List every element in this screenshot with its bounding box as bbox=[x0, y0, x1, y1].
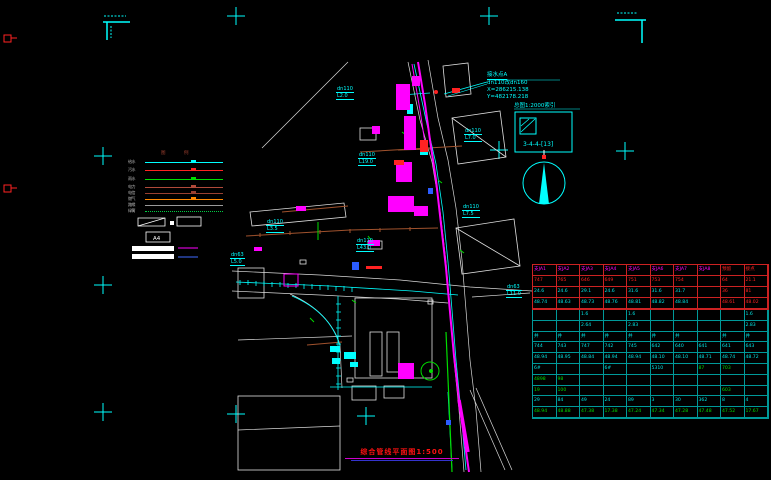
legend-row-line bbox=[145, 170, 223, 171]
table-cell: 24.6 bbox=[604, 287, 628, 298]
table-cell bbox=[533, 310, 557, 321]
pipe-length: L43.0 bbox=[356, 245, 374, 252]
table-cell: 47.24 bbox=[627, 407, 651, 418]
pipe-diameter: dn110 bbox=[266, 219, 284, 226]
table-cell bbox=[580, 375, 604, 386]
pipe-change-note: dn110改dn160 bbox=[487, 80, 529, 87]
edge-marker-icon bbox=[4, 35, 17, 192]
table-cell: 48.71 bbox=[698, 353, 722, 364]
table-cell: 641 bbox=[721, 342, 745, 353]
table-cell: 744 bbox=[533, 342, 557, 353]
table-cell bbox=[674, 321, 698, 332]
table-cell: 17.67 bbox=[745, 407, 769, 418]
corner-mark-top-right bbox=[615, 13, 646, 43]
pipe-diameter: dn110 bbox=[356, 238, 374, 245]
table-cell: 743 bbox=[557, 342, 581, 353]
table-cell: 643 bbox=[745, 342, 769, 353]
table-cell: 36 bbox=[721, 287, 745, 298]
coordinate-x: X=286215.138 bbox=[487, 87, 529, 94]
legend-row-label: 污水 bbox=[128, 167, 145, 173]
legend-a4-label: A4 bbox=[153, 236, 161, 242]
pipe-label: dn110L3.5 bbox=[266, 219, 284, 233]
table-cell: 支JA1 bbox=[533, 265, 557, 276]
table-cell: 21.1 bbox=[745, 276, 769, 287]
table-cell bbox=[604, 310, 628, 321]
table-cell bbox=[651, 375, 675, 386]
pipe-data-table: 支JA1支JA2支JA3支JA4支JA5支JA6支JA7支JA8预留接点7477… bbox=[532, 264, 769, 419]
table-cell: 703 bbox=[721, 364, 745, 375]
table-cell: 362 bbox=[698, 396, 722, 407]
hydrant-icon bbox=[352, 188, 451, 425]
pipe-length: L7.0 bbox=[464, 135, 482, 142]
table-cell: 24.6 bbox=[557, 287, 581, 298]
table-cell: 48.74 bbox=[721, 353, 745, 364]
table-cell: 747 bbox=[533, 276, 557, 287]
table-cell bbox=[745, 375, 769, 386]
table-cell: 48.81 bbox=[627, 298, 651, 309]
legend-row: 给水 bbox=[128, 159, 223, 165]
table-cell: 48.94 bbox=[533, 407, 557, 418]
pipe-label: dn110L43.0 bbox=[356, 238, 374, 252]
table-cell: 745 bbox=[627, 342, 651, 353]
table-cell: 30 bbox=[674, 396, 698, 407]
table-cell bbox=[698, 287, 722, 298]
table-cell bbox=[674, 310, 698, 321]
table-cell: 支JA4 bbox=[604, 265, 628, 276]
table-cell bbox=[604, 321, 628, 332]
table-cell: 84 bbox=[557, 396, 581, 407]
table-cell: 89 bbox=[627, 396, 651, 407]
table-cell bbox=[698, 386, 722, 397]
table-cell bbox=[557, 321, 581, 332]
legend-row-label: 绿篱 bbox=[128, 208, 145, 214]
table-cell: 29 bbox=[533, 396, 557, 407]
table-cell: 1.6 bbox=[580, 310, 604, 321]
table-cell bbox=[721, 375, 745, 386]
table-cell bbox=[674, 375, 698, 386]
table-cell: 31.6 bbox=[651, 287, 675, 298]
table-cell: 接点 bbox=[745, 265, 769, 276]
table-cell bbox=[698, 298, 722, 309]
legend-row-line bbox=[145, 193, 223, 194]
table-cell: 1.6 bbox=[627, 310, 651, 321]
table-cell bbox=[604, 386, 628, 397]
table-cell: 31.6 bbox=[627, 287, 651, 298]
table-cell: 765 bbox=[557, 276, 581, 287]
pipe-label: dn110L2.0 bbox=[336, 86, 354, 100]
pipe-diameter: dn110 bbox=[462, 204, 480, 211]
table-cell: 支JA5 bbox=[627, 265, 651, 276]
table-cell bbox=[698, 310, 722, 321]
table-cell bbox=[651, 386, 675, 397]
existing-utility-lines bbox=[246, 146, 462, 345]
legend-col2: 例 bbox=[184, 149, 189, 156]
table-cell: 5310 bbox=[651, 364, 675, 375]
pipe-length: L11.0 bbox=[506, 291, 522, 298]
table-cell: 751 bbox=[627, 276, 651, 287]
legend-row-line bbox=[145, 211, 223, 212]
table-cell bbox=[627, 364, 651, 375]
corner-mark-top-left bbox=[103, 16, 130, 40]
title-underline-2 bbox=[351, 460, 453, 461]
table-cell: 48.61 bbox=[721, 298, 745, 309]
legend-row-line bbox=[145, 162, 223, 163]
legend-row-marker bbox=[191, 160, 196, 163]
junction-annotation: 接水点A dn110改dn160 X=286215.138 Y=482178.2… bbox=[487, 72, 529, 101]
pipe-label: dn110L7.0 bbox=[464, 128, 482, 142]
table-cell: 4898 bbox=[533, 375, 557, 386]
table-cell: 2.83 bbox=[745, 321, 769, 332]
table-cell: 支JA2 bbox=[557, 265, 581, 276]
table-cell: 48.84 bbox=[580, 353, 604, 364]
table-cell: 6# bbox=[604, 364, 628, 375]
table-cell bbox=[533, 321, 557, 332]
table-cell: 井 bbox=[721, 332, 745, 343]
table-cell: 支JA7 bbox=[674, 265, 698, 276]
table-cell: 48.82 bbox=[651, 298, 675, 309]
table-cell: 48.95 bbox=[557, 353, 581, 364]
table-cell: 48.73 bbox=[580, 298, 604, 309]
legend-col1: 图 bbox=[161, 150, 166, 156]
table-cell: 753 bbox=[651, 276, 675, 287]
table-cell: 649 bbox=[604, 276, 628, 287]
table-cell bbox=[745, 386, 769, 397]
table-cell: 48.74 bbox=[533, 298, 557, 309]
table-cell bbox=[604, 375, 628, 386]
pipe-diameter: dn63 bbox=[230, 252, 245, 259]
table-cell: 24.6 bbox=[533, 287, 557, 298]
pipe-length: L2.0 bbox=[336, 93, 354, 100]
detail-box-label: 3-4-4-[13] bbox=[523, 141, 553, 148]
legend-row-line bbox=[145, 205, 223, 206]
table-cell: 24 bbox=[604, 396, 628, 407]
table-cell bbox=[557, 364, 581, 375]
table-cell bbox=[674, 386, 698, 397]
hatch-icon bbox=[521, 119, 535, 132]
table-cell: 87 bbox=[698, 364, 722, 375]
table-cell: 642 bbox=[651, 342, 675, 353]
table-cell: 6# bbox=[533, 364, 557, 375]
north-arrow-icon bbox=[523, 150, 565, 204]
table-cell bbox=[580, 364, 604, 375]
table-cell: 48.02 bbox=[745, 298, 769, 309]
legend-row-label: 雨水 bbox=[128, 176, 145, 182]
table-cell: 48.84 bbox=[674, 298, 698, 309]
table-cell: 47.48 bbox=[698, 407, 722, 418]
table-cell bbox=[557, 310, 581, 321]
table-cell bbox=[698, 276, 722, 287]
pipe-diameter: dn110 bbox=[336, 86, 354, 93]
table-cell: 2.83 bbox=[627, 321, 651, 332]
legend-row-marker bbox=[191, 185, 196, 188]
table-cell: 48.10 bbox=[674, 353, 698, 364]
coordinate-y: Y=482178.218 bbox=[487, 94, 529, 101]
legend-row-label: 给水 bbox=[128, 159, 145, 165]
table-cell: 4 bbox=[745, 396, 769, 407]
drawing-title-block: 综合管线平面图1:500 bbox=[337, 447, 467, 461]
table-cell: 19 bbox=[533, 386, 557, 397]
table-cell: 754 bbox=[674, 276, 698, 287]
table-cell: 井 bbox=[627, 332, 651, 343]
table-cell: 47.38 bbox=[580, 407, 604, 418]
table-cell bbox=[698, 375, 722, 386]
legend-row: 污水 bbox=[128, 167, 223, 173]
legend-row-line bbox=[145, 179, 223, 180]
legend-row-marker bbox=[191, 177, 196, 180]
table-cell: 48.10 bbox=[651, 353, 675, 364]
table-cell: 31.7 bbox=[674, 287, 698, 298]
pipe-diameter: dn110 bbox=[464, 128, 482, 135]
table-cell bbox=[721, 321, 745, 332]
table-cell: 49 bbox=[580, 396, 604, 407]
table-section-a: 支JA1支JA2支JA3支JA4支JA5支JA6支JA7支JA8预留接点7477… bbox=[532, 264, 769, 310]
table-cell bbox=[627, 375, 651, 386]
table-cell: 井 bbox=[674, 332, 698, 343]
table-cell: 井 bbox=[580, 332, 604, 343]
table-cell: 47.28 bbox=[674, 407, 698, 418]
table-cell bbox=[721, 310, 745, 321]
title-underline bbox=[345, 458, 459, 459]
table-section-b: 1.61.61.62.642.832.83井井井井井井井井井7447437477… bbox=[532, 310, 769, 419]
table-cell: 井 bbox=[651, 332, 675, 343]
table-cell: 29.1 bbox=[580, 287, 604, 298]
drawing-title: 综合管线平面图1:500 bbox=[337, 447, 467, 457]
table-cell: 646 bbox=[580, 276, 604, 287]
table-cell: 100 bbox=[557, 386, 581, 397]
table-cell: 48.76 bbox=[604, 298, 628, 309]
table-cell: 742 bbox=[604, 342, 628, 353]
table-cell bbox=[745, 364, 769, 375]
table-cell bbox=[674, 364, 698, 375]
table-cell: 48.88 bbox=[557, 407, 581, 418]
table-cell: 8 bbox=[721, 396, 745, 407]
pipe-length: L19.0 bbox=[358, 159, 376, 166]
pipe-length: L3.5 bbox=[266, 226, 284, 233]
legend-bar bbox=[132, 254, 174, 259]
table-cell: 48.63 bbox=[557, 298, 581, 309]
table-cell: 48.94 bbox=[533, 353, 557, 364]
legend-row-marker bbox=[191, 197, 196, 200]
legend-row-line bbox=[145, 199, 223, 200]
table-cell: 64 bbox=[721, 276, 745, 287]
table-cell: 井 bbox=[533, 332, 557, 343]
table-cell: 井 bbox=[557, 332, 581, 343]
legend-bar bbox=[132, 246, 174, 251]
table-cell: 641 bbox=[698, 342, 722, 353]
table-cell: 48.94 bbox=[627, 353, 651, 364]
table-cell: 支JA3 bbox=[580, 265, 604, 276]
pipe-label: dn110L7.5 bbox=[462, 204, 480, 218]
table-cell: 47.52 bbox=[721, 407, 745, 418]
legend-row-marker bbox=[191, 191, 196, 194]
table-cell: 17.38 bbox=[604, 407, 628, 418]
table-cell: 48.94 bbox=[604, 353, 628, 364]
table-cell: 井 bbox=[745, 332, 769, 343]
table-cell bbox=[698, 321, 722, 332]
pipe-label: dn110L19.0 bbox=[358, 152, 376, 166]
legend-row-line bbox=[145, 187, 223, 188]
pipe-length: L5.0 bbox=[230, 259, 245, 266]
table-cell: 预留 bbox=[721, 265, 745, 276]
table-cell: 井 bbox=[604, 332, 628, 343]
table-cell: 3 bbox=[651, 396, 675, 407]
tree-symbol bbox=[429, 369, 433, 373]
pipe-diameter: dn63 bbox=[506, 284, 522, 291]
pipe-label: dn63L11.0 bbox=[506, 284, 522, 298]
table-cell: 98 bbox=[557, 375, 581, 386]
cad-canvas[interactable]: 3-4-4-[13] 总图1:2000索引 A4 图 例 bbox=[0, 0, 771, 480]
table-cell: 47.34 bbox=[651, 407, 675, 418]
junction-name: 接水点A bbox=[487, 72, 507, 80]
pipe-diameter: dn110 bbox=[358, 152, 376, 159]
detail-box-title: 总图1:2000索引 bbox=[514, 101, 555, 109]
table-cell bbox=[698, 332, 722, 343]
legend-row: 雨水 bbox=[128, 176, 223, 182]
table-cell bbox=[651, 310, 675, 321]
table-cell: 81 bbox=[745, 287, 769, 298]
detail-index-box: 3-4-4-[13] 总图1:2000索引 bbox=[514, 101, 580, 152]
table-cell: 支JA8 bbox=[698, 265, 722, 276]
table-cell bbox=[651, 321, 675, 332]
legend-row-marker bbox=[191, 168, 196, 171]
pipe-label: dn63L5.0 bbox=[230, 252, 245, 266]
table-cell bbox=[627, 386, 651, 397]
table-cell: 2.64 bbox=[580, 321, 604, 332]
pipe-length: L7.5 bbox=[462, 211, 480, 218]
legend-row: 绿篱 bbox=[128, 208, 223, 214]
table-cell: 640 bbox=[674, 342, 698, 353]
table-cell: 603 bbox=[721, 386, 745, 397]
table-cell: 1.6 bbox=[745, 310, 769, 321]
table-cell bbox=[580, 386, 604, 397]
table-cell: 48.72 bbox=[745, 353, 769, 364]
table-cell: 支JA6 bbox=[651, 265, 675, 276]
table-cell: 747 bbox=[580, 342, 604, 353]
